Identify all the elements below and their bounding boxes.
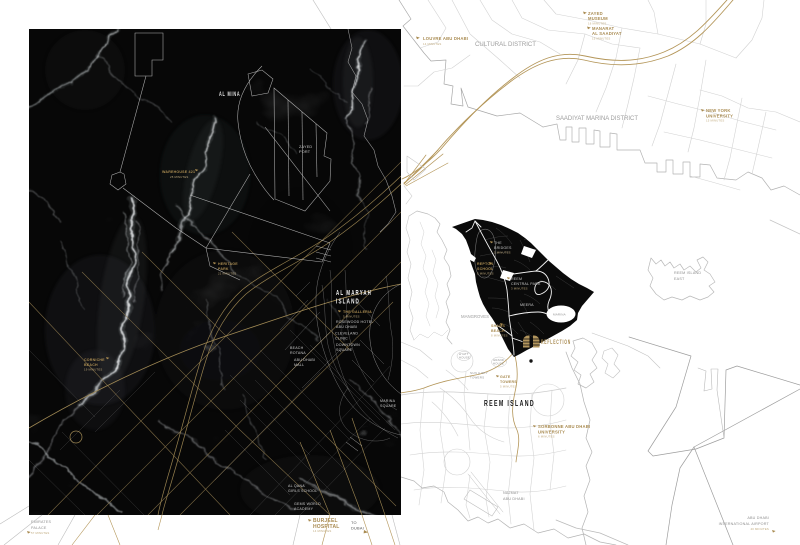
svg-text:BEACH: BEACH [491, 329, 505, 333]
svg-text:25 MINUTES: 25 MINUTES [170, 175, 188, 179]
svg-text:15 MINUTES: 15 MINUTES [706, 119, 724, 123]
svg-text:ABU DHABI: ABU DHABI [336, 325, 357, 329]
svg-text:57 MINUTES: 57 MINUTES [31, 531, 49, 535]
svg-text:BEACH: BEACH [290, 346, 304, 350]
svg-text:ACADEMY: ACADEMY [294, 507, 314, 511]
svg-text:AL SAADIYAT: AL SAADIYAT [592, 31, 622, 36]
svg-text:SCHOOL: SCHOOL [477, 267, 494, 271]
svg-text:GEMS WORLD: GEMS WORLD [294, 502, 321, 506]
svg-text:5 MINUTES: 5 MINUTES [477, 272, 494, 276]
svg-text:BEACH: BEACH [84, 363, 98, 367]
svg-text:LOUVRE ABU DHABI: LOUVRE ABU DHABI [423, 36, 468, 41]
svg-text:REEM ISLAND: REEM ISLAND [484, 398, 535, 408]
svg-text:3 MINUTES: 3 MINUTES [511, 287, 528, 291]
svg-text:THE: THE [494, 241, 502, 245]
svg-text:TO: TO [351, 520, 357, 525]
svg-text:EAST: EAST [674, 277, 685, 281]
svg-text:REFLECTION: REFLECTION [541, 339, 571, 346]
svg-text:CULTURAL DISTRICT: CULTURAL DISTRICT [475, 41, 536, 48]
svg-text:MEERA: MEERA [520, 303, 534, 307]
svg-text:REEM: REEM [511, 277, 522, 281]
svg-text:NAJMAT: NAJMAT [503, 491, 519, 495]
svg-text:INTERNATIONAL AIRPORT: INTERNATIONAL AIRPORT [719, 522, 770, 526]
svg-text:15 MINUTES: 15 MINUTES [592, 37, 610, 41]
svg-text:GIRLS SCHOOL: GIRLS SCHOOL [288, 489, 317, 493]
svg-text:HERITAGE: HERITAGE [218, 262, 238, 266]
svg-text:19 MINUTES: 19 MINUTES [84, 368, 102, 372]
svg-text:WAREHOUSE 421: WAREHOUSE 421 [162, 170, 195, 174]
svg-text:REEM ISLAND: REEM ISLAND [674, 271, 701, 275]
svg-text:DUBAI: DUBAI [351, 526, 364, 531]
svg-text:ABU DHABI: ABU DHABI [294, 358, 315, 362]
svg-text:THE GALLERIA: THE GALLERIA [343, 310, 372, 314]
svg-text:AL MARYAH: AL MARYAH [336, 290, 372, 297]
svg-text:PALACE: PALACE [31, 526, 47, 530]
svg-text:CLINIC: CLINIC [335, 337, 348, 341]
svg-text:ABU DHABI: ABU DHABI [503, 497, 525, 501]
svg-text:ISLAND: ISLAND [336, 299, 360, 306]
svg-text:SQUARE: SQUARE [380, 404, 397, 408]
svg-text:SAADIYAT MARINA DISTRICT: SAADIYAT MARINA DISTRICT [556, 115, 638, 122]
svg-text:TOWERS: TOWERS [470, 376, 484, 380]
svg-text:ZAYED: ZAYED [299, 145, 312, 149]
svg-text:AL QANA: AL QANA [288, 484, 305, 488]
svg-text:16 MINUTES: 16 MINUTES [588, 22, 606, 26]
svg-text:SQUARE: SQUARE [336, 348, 353, 352]
svg-text:CENTRAL PARK: CENTRAL PARK [511, 282, 541, 286]
svg-text:40 MINUTES: 40 MINUTES [751, 527, 769, 531]
svg-text:MARINA: MARINA [553, 313, 566, 317]
svg-text:MANGROVES: MANGROVES [461, 314, 490, 320]
svg-text:PARK: PARK [218, 267, 229, 271]
svg-text:ROTANA: ROTANA [290, 351, 306, 355]
svg-text:ABU DHABI: ABU DHABI [747, 516, 769, 520]
svg-text:MARINA: MARINA [380, 399, 396, 403]
svg-text:5 MINUTES: 5 MINUTES [500, 385, 517, 389]
svg-text:ROSEWOOD HOTEL: ROSEWOOD HOTEL [336, 320, 374, 324]
svg-text:5 MINUTES: 5 MINUTES [343, 315, 360, 319]
svg-text:EMIRATES: EMIRATES [31, 520, 52, 524]
svg-text:AL MINA: AL MINA [219, 92, 241, 98]
svg-text:CORNICHE: CORNICHE [84, 358, 105, 362]
svg-text:SHAMS: SHAMS [491, 324, 505, 328]
svg-text:6 MINUTES: 6 MINUTES [538, 435, 555, 439]
svg-text:8 MINUTES: 8 MINUTES [491, 334, 508, 338]
svg-text:PORT: PORT [299, 150, 311, 154]
svg-text:14 MINUTES: 14 MINUTES [423, 42, 441, 46]
svg-text:MALL: MALL [294, 363, 304, 367]
svg-text:SUN & SKY: SUN & SKY [470, 371, 488, 375]
svg-text:REPTON: REPTON [477, 262, 493, 266]
svg-text:NEW YORK: NEW YORK [706, 108, 731, 113]
svg-text:HOUSE: HOUSE [493, 362, 504, 366]
svg-text:21 MINUTES: 21 MINUTES [218, 272, 236, 276]
svg-text:5 MINUTES: 5 MINUTES [494, 251, 511, 255]
svg-text:14 MINUTES: 14 MINUTES [313, 529, 331, 533]
svg-text:HOUSE: HOUSE [459, 356, 470, 360]
svg-text:SORBONNE ABU DHABI: SORBONNE ABU DHABI [538, 424, 590, 429]
svg-text:BRIDGES: BRIDGES [494, 246, 512, 250]
svg-text:CLEVELAND: CLEVELAND [335, 332, 358, 336]
svg-text:MUSEUM: MUSEUM [588, 16, 608, 21]
svg-text:TOWERS: TOWERS [500, 380, 517, 384]
svg-text:DOWNTOWN: DOWNTOWN [336, 343, 360, 347]
svg-text:GATE: GATE [500, 375, 511, 379]
